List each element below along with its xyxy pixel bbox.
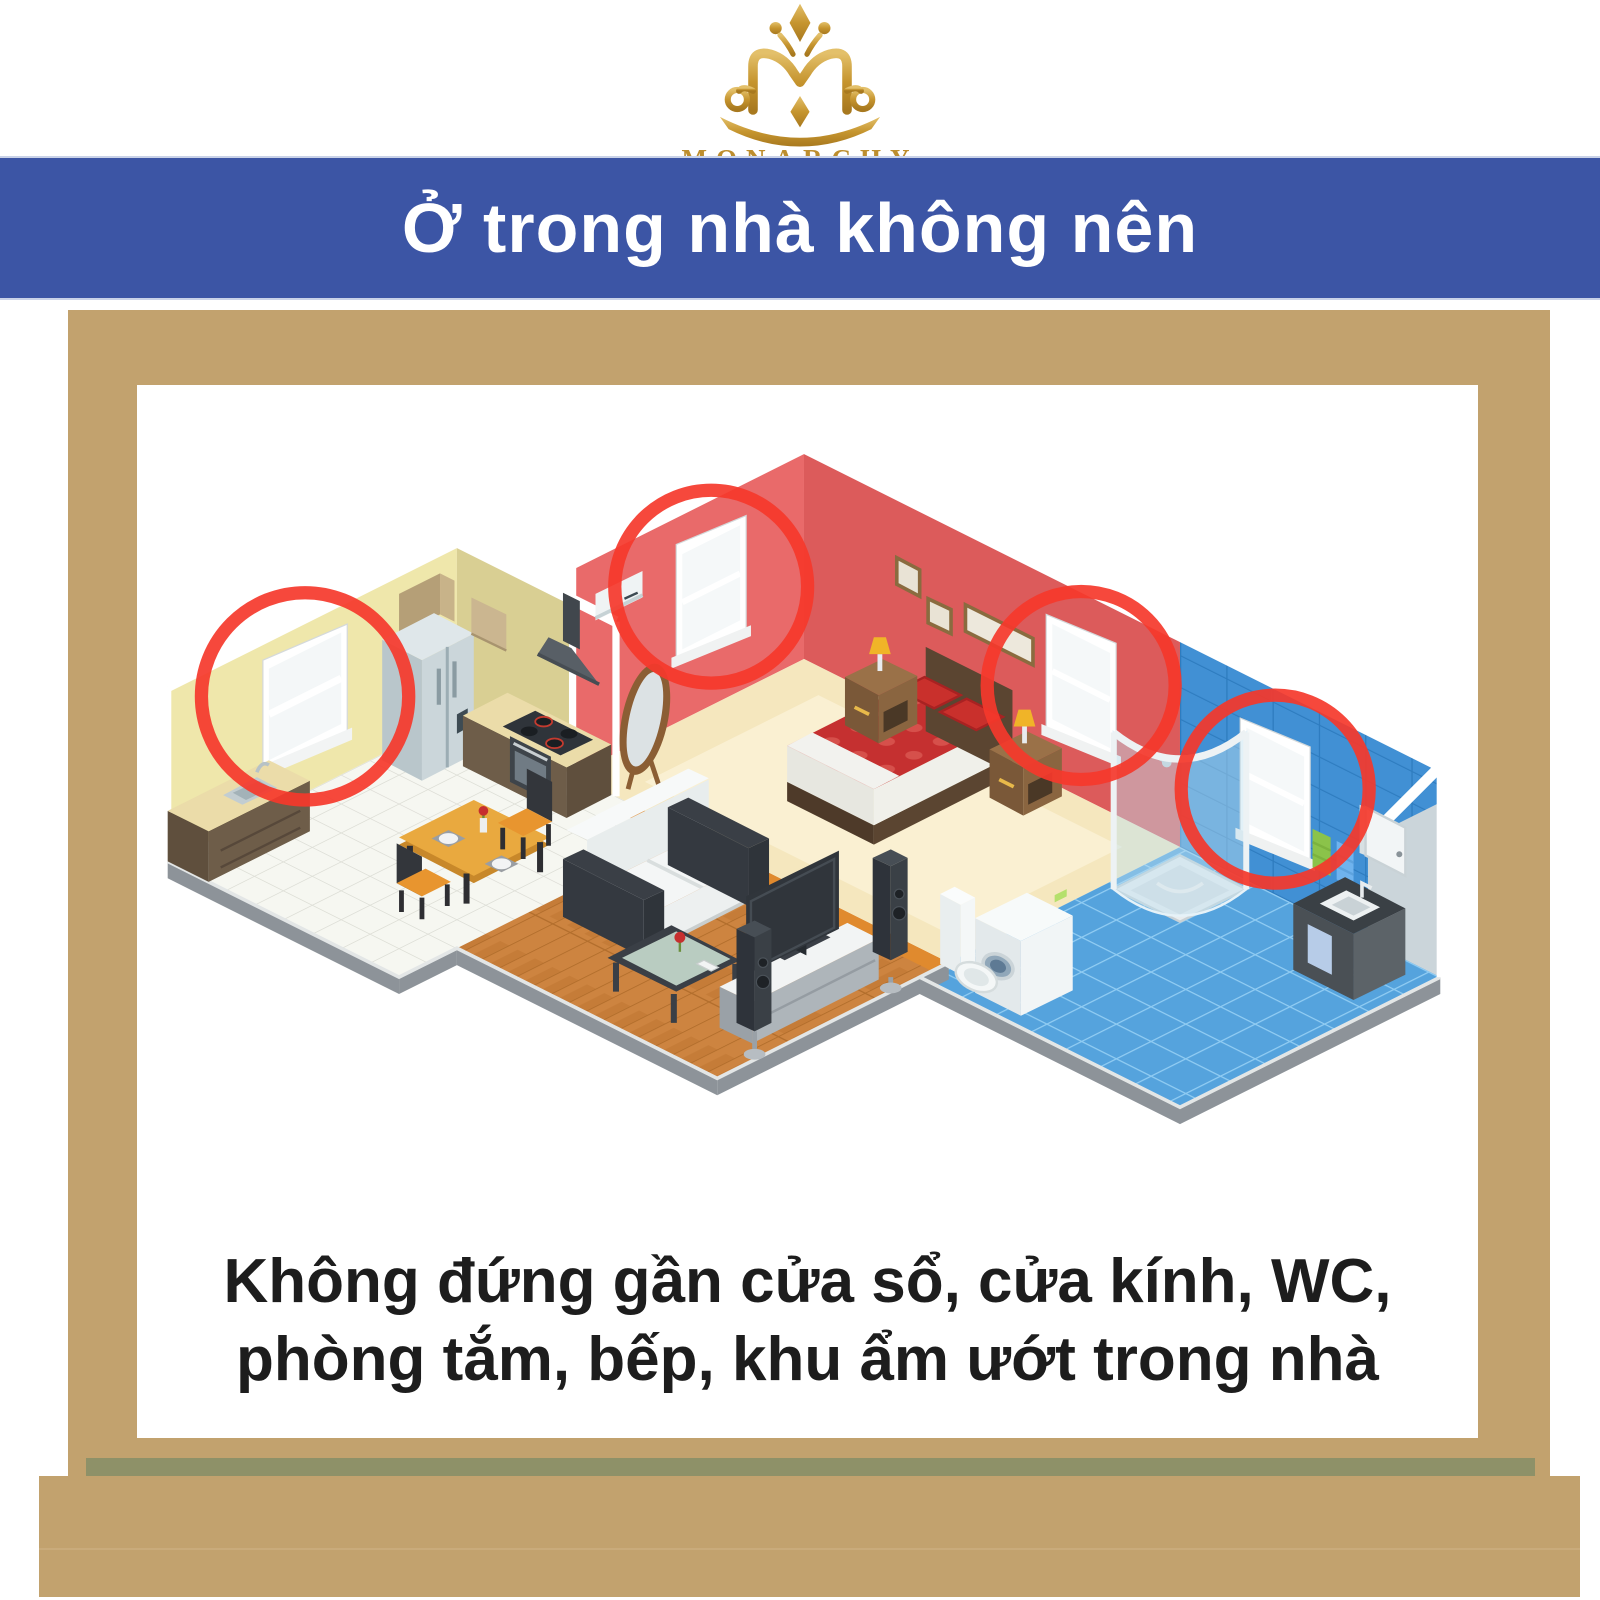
easel-shadow-band xyxy=(86,1458,1535,1476)
caption-line-1: Không đứng gần cửa sổ, cửa kính, WC, xyxy=(137,1243,1478,1321)
title-banner: Ở trong nhà không nên xyxy=(0,156,1600,300)
flower xyxy=(674,932,685,943)
rose xyxy=(479,806,489,816)
vase xyxy=(480,818,487,832)
apartment-illustration xyxy=(147,430,1467,1135)
caption-line-2: phòng tắm, bếp, khu ẩm ướt trong nhà xyxy=(137,1321,1478,1399)
easel-frame-bottom xyxy=(137,1438,1478,1458)
easel-canvas: Không đứng gần cửa sổ, cửa kính, WC, phò… xyxy=(137,385,1478,1438)
banner-title: Ở trong nhà không nên xyxy=(0,158,1600,298)
crown-icon xyxy=(695,2,905,150)
caption: Không đứng gần cửa sổ, cửa kính, WC, phò… xyxy=(137,1243,1478,1399)
easel-frame-right-leg xyxy=(1478,310,1550,1476)
monarchy-logo: MONARCHY xyxy=(640,2,960,175)
easel-base-line xyxy=(39,1548,1580,1550)
easel-base xyxy=(39,1476,1580,1597)
easel-frame-left-leg xyxy=(68,310,137,1476)
easel-frame-top xyxy=(68,310,1550,385)
